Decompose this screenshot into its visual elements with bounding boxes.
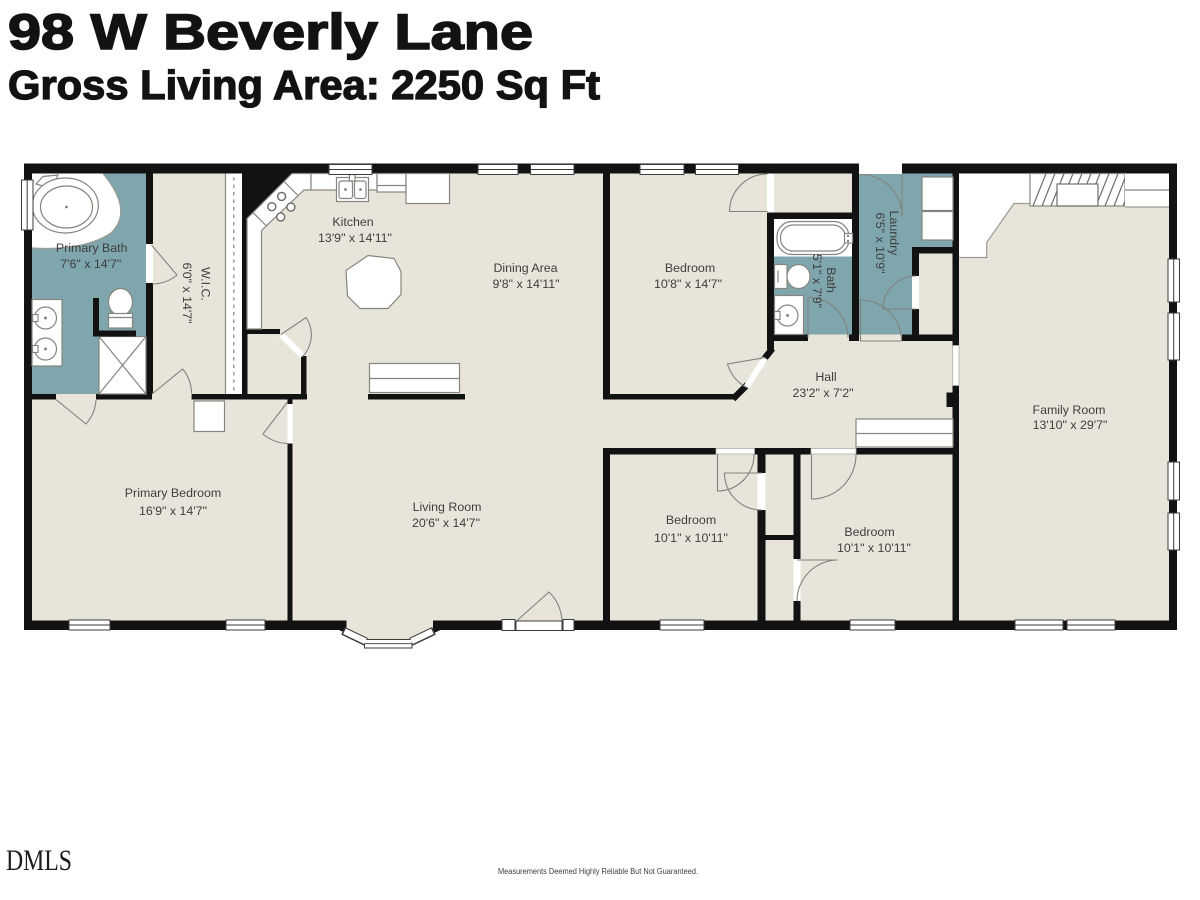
svg-text:Kitchen: Kitchen: [332, 215, 373, 229]
svg-text:7'6" x 14'7": 7'6" x 14'7": [60, 257, 121, 271]
svg-text:13'9" x 14'11": 13'9" x 14'11": [318, 231, 392, 245]
svg-text:DMLS: DMLS: [6, 844, 72, 877]
svg-text:16'9" x 14'7": 16'9" x 14'7": [139, 504, 207, 518]
svg-text:Laundry: Laundry: [887, 211, 901, 257]
svg-text:Bedroom: Bedroom: [665, 261, 715, 275]
svg-text:Primary Bath: Primary Bath: [56, 241, 128, 255]
svg-text:Gross Living Area: 2250 Sq Ft: Gross Living Area: 2250 Sq Ft: [8, 62, 600, 108]
svg-text:5'1" x 7'9": 5'1" x 7'9": [810, 254, 824, 308]
svg-text:Bath: Bath: [824, 267, 838, 293]
svg-text:13'10" x 29'7": 13'10" x 29'7": [1033, 418, 1108, 432]
svg-text:10'1" x 10'11": 10'1" x 10'11": [837, 541, 911, 555]
svg-text:10'1" x 10'11": 10'1" x 10'11": [654, 531, 728, 545]
svg-text:Hall: Hall: [815, 370, 836, 384]
svg-text:Primary Bedroom: Primary Bedroom: [125, 486, 221, 500]
svg-text:W.I.C.: W.I.C.: [199, 267, 213, 301]
svg-text:20'6" x 14'7": 20'6" x 14'7": [412, 516, 480, 530]
svg-text:6'5" x 10'9": 6'5" x 10'9": [873, 212, 887, 273]
svg-text:98 W Beverly Lane: 98 W Beverly Lane: [8, 4, 533, 60]
svg-text:Dining Area: Dining Area: [493, 261, 557, 275]
svg-text:9'8" x 14'11": 9'8" x 14'11": [492, 277, 559, 291]
svg-text:Bedroom: Bedroom: [666, 513, 716, 527]
svg-text:10'8" x 14'7": 10'8" x 14'7": [654, 277, 722, 291]
svg-text:Bedroom: Bedroom: [844, 525, 894, 539]
svg-text:Living Room: Living Room: [413, 500, 482, 514]
svg-text:Measurements Deemed Highly Rel: Measurements Deemed Highly Reliable But …: [498, 867, 698, 876]
svg-text:Family Room: Family Room: [1033, 403, 1106, 417]
svg-text:6'0" x 14'7": 6'0" x 14'7": [180, 262, 194, 323]
svg-text:23'2" x 7'2": 23'2" x 7'2": [792, 386, 853, 400]
